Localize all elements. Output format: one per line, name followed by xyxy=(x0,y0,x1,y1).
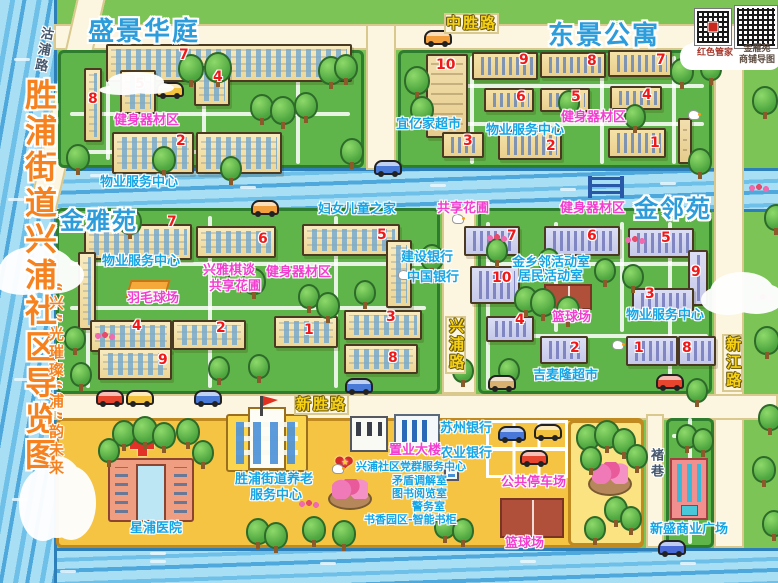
building-number: 2 xyxy=(176,134,186,148)
road-label-xinjianglu: 新江路 xyxy=(722,334,743,392)
car xyxy=(658,540,686,555)
tree xyxy=(758,404,778,431)
building-windows xyxy=(549,231,615,251)
label-yanglao-line1: 胜浦街道养老 xyxy=(235,473,313,488)
water-wave xyxy=(150,560,166,563)
building xyxy=(344,344,418,374)
tree xyxy=(404,66,430,95)
tree xyxy=(354,280,376,305)
label-dangqun-center: 兴浦社区党群服务中心 xyxy=(356,461,466,474)
car xyxy=(96,390,124,405)
label-jingwu-room: 警务室 xyxy=(412,501,445,514)
building-number: 6 xyxy=(258,232,268,246)
label-jumin-room: 居民活动室 xyxy=(518,270,583,285)
tree xyxy=(752,456,776,483)
building-number: 8 xyxy=(388,351,398,365)
car xyxy=(251,200,279,215)
label-shared-garden-jinlin: 共享花圃 xyxy=(437,202,489,217)
water-wave xyxy=(240,186,256,189)
building-number: 5 xyxy=(571,90,581,104)
car xyxy=(520,450,548,465)
road-label-zhongshenglu: 中胜路 xyxy=(444,13,499,34)
tree xyxy=(762,510,778,537)
tree xyxy=(98,438,120,463)
cloud xyxy=(710,272,774,312)
tree xyxy=(686,378,708,403)
building-number: 3 xyxy=(645,287,655,301)
car xyxy=(488,375,516,390)
tree xyxy=(334,54,358,81)
tree xyxy=(152,146,176,173)
building-number: 1 xyxy=(634,341,644,355)
building-number: 6 xyxy=(587,229,597,243)
flower-cluster xyxy=(94,332,116,340)
building-number: 4 xyxy=(132,319,142,333)
hospital-glass-front xyxy=(136,464,166,520)
tree xyxy=(192,440,214,465)
water-wave xyxy=(150,552,166,555)
zone-title-shengjinghuating: 盛景华庭 xyxy=(88,18,200,48)
building-number: 4 xyxy=(515,313,525,327)
building-number: 4 xyxy=(213,70,223,84)
label-fitness-shengjing: 健身器材区 xyxy=(114,114,179,129)
tree xyxy=(340,138,364,165)
label-yiyijia-market: 宜亿家超市 xyxy=(396,118,461,133)
building-number: 3 xyxy=(463,134,473,148)
label-wuye-jinya: 物业服务中心 xyxy=(102,255,180,270)
road-label-xingpulu: 兴浦路 xyxy=(445,316,466,374)
car xyxy=(498,426,526,441)
building-number: 2 xyxy=(216,321,226,335)
building-number: 7 xyxy=(167,215,177,229)
building xyxy=(486,316,534,342)
building-number: 8 xyxy=(88,92,98,106)
tree xyxy=(64,326,86,351)
qr-label-red-housekeeper: 红色管家 xyxy=(697,48,733,59)
tree xyxy=(764,204,778,231)
qr-label-shop-guide: 金雁苑商铺导图 xyxy=(739,44,775,66)
flower-bed xyxy=(588,472,632,496)
label-xingya-chess: 兴雅棋谈 xyxy=(203,264,255,279)
tree xyxy=(66,144,90,171)
label-funv-ertong: 妇女儿童之家 xyxy=(318,203,396,218)
label-jimailong-market: 吉麦隆超市 xyxy=(533,369,598,384)
label-badminton: 羽毛球场 xyxy=(127,292,179,307)
flower-bed xyxy=(328,488,372,510)
label-suzhou-bank: 苏州银行 xyxy=(440,422,492,437)
red-flag-icon xyxy=(260,396,263,416)
water-wave xyxy=(680,562,696,565)
water-wave xyxy=(520,560,536,563)
car xyxy=(656,374,684,389)
building-number: 9 xyxy=(158,353,168,367)
label-shared-garden-jinya: 共享花圃 xyxy=(209,280,261,295)
tree xyxy=(70,362,92,387)
label-maodun-room: 矛盾调解室 xyxy=(392,475,447,488)
tree xyxy=(624,104,646,129)
tree xyxy=(620,506,642,531)
flower-cluster xyxy=(748,184,770,192)
building-number: 10 xyxy=(492,271,511,285)
tree xyxy=(294,92,318,119)
building xyxy=(172,320,246,350)
building-number: 7 xyxy=(656,53,666,67)
qr-code-shop-guide xyxy=(734,5,778,49)
label-xingpu-hospital: 星浦医院 xyxy=(130,522,182,537)
water-wave xyxy=(12,498,28,501)
zone-title-jinlinyuan: 金邻苑 xyxy=(634,196,712,224)
flower-cluster xyxy=(486,234,508,242)
label-yanglao-line2: 服务中心 xyxy=(250,489,302,504)
car xyxy=(345,378,373,393)
building-windows xyxy=(349,349,413,369)
label-jianshe-bank: 建设银行 xyxy=(401,251,453,266)
tree xyxy=(584,516,606,541)
tree xyxy=(594,258,616,283)
white-office-building xyxy=(350,416,388,452)
bridge-icon xyxy=(588,176,624,198)
building xyxy=(484,88,534,112)
building xyxy=(540,336,588,364)
building-number: 9 xyxy=(519,53,529,67)
tree xyxy=(248,354,270,379)
label-tushu-room: 图书阅览室 xyxy=(392,488,447,501)
zone-title-dongjinggongyu: 东景公寓 xyxy=(548,22,660,52)
label-zhongguo-bank: 中国银行 xyxy=(407,271,459,286)
car xyxy=(126,390,154,405)
road-between-north-zones xyxy=(366,24,396,170)
duck xyxy=(688,110,700,120)
water-wave xyxy=(430,184,446,187)
zone-title-jinyayuan: 金雅苑 xyxy=(60,208,138,236)
tree xyxy=(270,96,296,125)
building-number: 8 xyxy=(587,54,597,68)
building-number: 3 xyxy=(386,310,396,324)
tree xyxy=(208,356,230,381)
commercial-plaza-building xyxy=(670,458,708,520)
label-fitness-dongjing: 健身器材区 xyxy=(561,111,626,126)
building-number: 5 xyxy=(377,228,387,242)
label-zhiye-tower: 置业大楼 xyxy=(389,444,441,459)
building-number: 6 xyxy=(516,90,526,104)
label-xinsheng-plaza: 新盛商业广场 xyxy=(650,523,728,538)
label-nongye-bank: 农业银行 xyxy=(440,447,492,462)
map-slogan: “兴”光璀璨“浦”韵未来 xyxy=(46,282,67,477)
building-number: 9 xyxy=(691,265,701,279)
building xyxy=(78,252,96,330)
water-wave xyxy=(14,58,30,61)
tree xyxy=(752,86,778,115)
tree xyxy=(332,520,356,547)
label-basketball-jinlin: 篮球场 xyxy=(552,311,591,326)
cloud xyxy=(108,72,164,92)
tree xyxy=(692,428,714,453)
label-fitness-jinya: 健身器材区 xyxy=(266,266,331,281)
building-number: 10 xyxy=(436,58,455,72)
label-wuye-shengjing: 物业服务中心 xyxy=(100,176,178,191)
tree xyxy=(622,264,644,289)
water-wave xyxy=(60,570,76,573)
tree xyxy=(626,444,648,469)
label-basketball-south: 篮球场 xyxy=(505,537,544,552)
community-map: ❤★ 盛景华庭东景公寓金雅苑金邻苑中胜路新胜路兴浦路新江路沽浦路褚巷物业服务中心… xyxy=(0,0,778,583)
tree xyxy=(688,148,712,175)
car xyxy=(534,424,562,439)
label-parking: 公共停车场 xyxy=(501,476,566,491)
building xyxy=(344,310,422,340)
tree xyxy=(220,156,242,181)
car xyxy=(374,160,402,175)
hospital-building xyxy=(108,444,194,522)
building-number: 8 xyxy=(682,341,692,355)
building-windows xyxy=(83,257,91,325)
tree xyxy=(580,446,602,471)
label-shuxiang-bookcase: 书香园区-智能书柜 xyxy=(364,514,457,527)
road-label-xinshenglu: 新胜路 xyxy=(294,394,349,415)
water-wave xyxy=(320,562,336,565)
building-number: 4 xyxy=(642,88,652,102)
building-number: 2 xyxy=(546,139,556,153)
building-number: 2 xyxy=(570,341,580,355)
water-wave xyxy=(560,188,576,191)
building-number: 1 xyxy=(650,136,660,150)
label-wuye-dongjing: 物业服务中心 xyxy=(486,124,564,139)
tree xyxy=(754,326,778,355)
building-windows xyxy=(683,123,687,159)
building-windows xyxy=(349,315,417,335)
tree xyxy=(316,292,340,319)
label-wuye-jinlin: 物业服务中心 xyxy=(626,309,704,324)
qr-code-red-housekeeper xyxy=(694,8,732,46)
hospital-body xyxy=(108,458,194,522)
duck xyxy=(332,464,344,474)
building-number: 5 xyxy=(661,231,671,245)
duck xyxy=(612,340,624,350)
building-windows xyxy=(177,325,241,345)
building-number: 7 xyxy=(179,48,189,62)
tree xyxy=(302,516,326,543)
building-number: 1 xyxy=(304,323,314,337)
car xyxy=(194,390,222,405)
basketball-court-south xyxy=(500,498,564,538)
water-wave xyxy=(660,182,676,185)
building-number: 7 xyxy=(507,229,517,243)
flower-cluster xyxy=(624,236,646,244)
label-fitness-jinlin: 健身器材区 xyxy=(560,202,625,217)
elder-care-center-building xyxy=(226,414,308,472)
tree xyxy=(264,522,288,549)
road-label-zhuxiang: 褚巷 xyxy=(647,448,662,480)
tree xyxy=(152,422,176,449)
